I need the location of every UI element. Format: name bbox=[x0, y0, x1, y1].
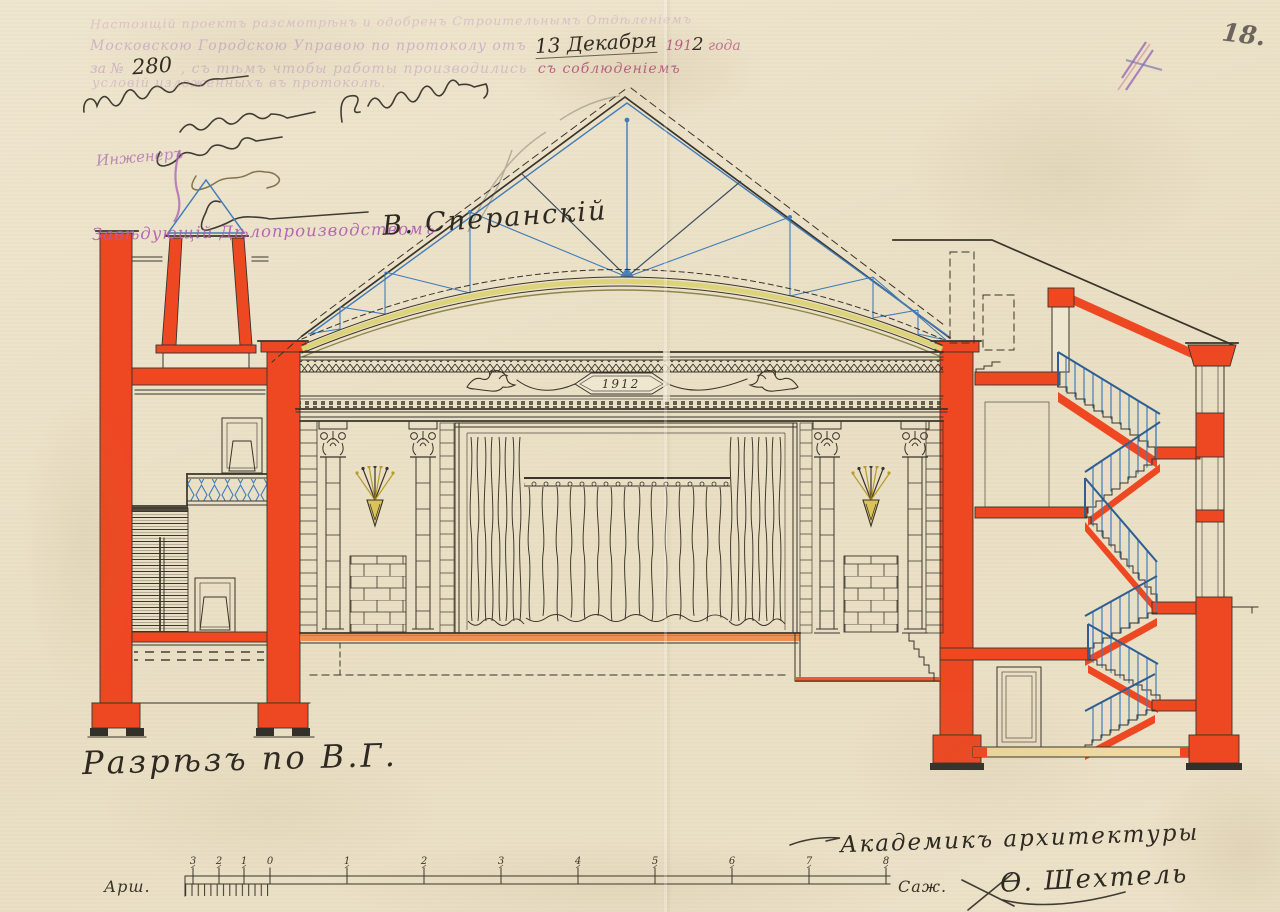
brick-panel-left bbox=[350, 556, 406, 632]
ground-floor-door bbox=[997, 667, 1041, 747]
pilaster bbox=[319, 421, 347, 633]
landing-outer-1 bbox=[1155, 447, 1200, 459]
stamp-year-suffix: года bbox=[708, 38, 741, 54]
scale-tick: 5 bbox=[652, 856, 658, 867]
griffin-right bbox=[750, 370, 798, 391]
right-outer-wall bbox=[1186, 343, 1258, 770]
upper-niche bbox=[222, 418, 262, 473]
scale-tick: 6 bbox=[729, 856, 736, 867]
paper-fold-gap bbox=[663, 350, 670, 402]
landing-outer-2 bbox=[1152, 602, 1200, 614]
scale-tick: 8 bbox=[883, 856, 889, 867]
door-opening-outline bbox=[985, 402, 1049, 507]
curtain-panel-right bbox=[729, 437, 785, 626]
louver-panel bbox=[132, 505, 188, 632]
stage-floor bbox=[300, 633, 940, 682]
rustic-strip-right bbox=[926, 421, 943, 633]
wall-sconce-left bbox=[355, 465, 394, 526]
scale-tick: 2 bbox=[420, 856, 427, 867]
floor-slab-mid bbox=[975, 507, 1087, 518]
scale-tick: 3 bbox=[190, 856, 196, 867]
scale-tick: 0 bbox=[267, 856, 274, 867]
side-steps bbox=[904, 633, 934, 681]
brick-panel-right bbox=[844, 556, 898, 632]
vent-shaft-dashed bbox=[983, 295, 1014, 350]
stamp-line-3-prefix: за № bbox=[90, 61, 124, 77]
ground-floor-slab bbox=[973, 747, 1195, 757]
drawing-sheet: 1912 bbox=[0, 0, 1280, 912]
pilaster bbox=[813, 421, 841, 633]
subdivision-comb bbox=[185, 884, 270, 896]
guilloche-band bbox=[300, 360, 943, 372]
floor-slab-first bbox=[940, 648, 1090, 660]
scale-tick: 1 bbox=[241, 856, 247, 867]
vent-shaft-dashed bbox=[950, 252, 974, 343]
stage-curtains bbox=[468, 437, 785, 626]
stamp-line-3-body: , съ тѣмъ чтобы работы производились bbox=[181, 61, 528, 77]
page-mark-doodle bbox=[1118, 42, 1162, 90]
chimney-stack bbox=[132, 236, 280, 385]
scale-tick: 3 bbox=[498, 856, 504, 867]
cartouche-year: 1912 bbox=[602, 377, 641, 391]
entablature: 1912 bbox=[296, 352, 947, 421]
wall-sconce-right bbox=[851, 465, 890, 526]
scale-tick: 1 bbox=[344, 856, 350, 867]
curtain-valance-bar bbox=[524, 478, 730, 486]
scale-left-label: Арш. bbox=[103, 877, 151, 896]
curtain-inner bbox=[526, 487, 728, 622]
scale-tick: 4 bbox=[574, 856, 581, 867]
stage-wall bbox=[300, 421, 943, 633]
rustic-strip-left bbox=[300, 421, 317, 633]
dentil-band bbox=[300, 401, 943, 408]
stamp-line-2-prefix: Московскою Городскою Управою по протокол… bbox=[90, 38, 526, 54]
signature-scribble bbox=[180, 112, 315, 132]
pilaster bbox=[409, 421, 437, 633]
stamp-line-3-emphasis: съ соблюденіемъ bbox=[538, 61, 681, 77]
pilaster bbox=[901, 421, 929, 633]
balcony-railing bbox=[187, 474, 270, 505]
scale-right-label: Саж. bbox=[898, 877, 947, 896]
stamp-year-handwritten: 2 bbox=[692, 34, 703, 55]
grade-line bbox=[1232, 607, 1258, 613]
floor-slab-top bbox=[975, 372, 1060, 385]
stamp-line-2: Московскою Городскою Управою по протокол… bbox=[90, 31, 741, 56]
curtain-panel-left bbox=[468, 437, 524, 626]
page-number: 18. bbox=[1220, 17, 1267, 51]
signature-scribbles bbox=[84, 42, 1162, 910]
hidden-foundation-dashes bbox=[134, 647, 264, 663]
flourish-dash bbox=[790, 838, 840, 845]
upper-floor-slab bbox=[132, 368, 280, 385]
balcony-floor-slab bbox=[132, 632, 268, 642]
stair-roof-beam bbox=[1058, 292, 1204, 360]
stamp-line-3: за № 280 , съ тѣмъ чтобы работы производ… bbox=[90, 54, 681, 78]
stamp-year-printed: 191 bbox=[665, 38, 692, 54]
griffin-left bbox=[467, 370, 515, 391]
frieze-cartouche: 1912 bbox=[575, 373, 668, 394]
lower-niche bbox=[195, 578, 235, 632]
stamp-line-4: условій изложенныхъ въ протоколѣ. bbox=[92, 76, 387, 91]
scale-tick: 7 bbox=[806, 856, 813, 867]
landing-outer-3 bbox=[1152, 700, 1196, 711]
scale-tick: 2 bbox=[215, 856, 222, 867]
scale-bar: 3 2 1 0 1 2 3 4 5 6 7 8 Арш. Саж. bbox=[103, 856, 947, 896]
